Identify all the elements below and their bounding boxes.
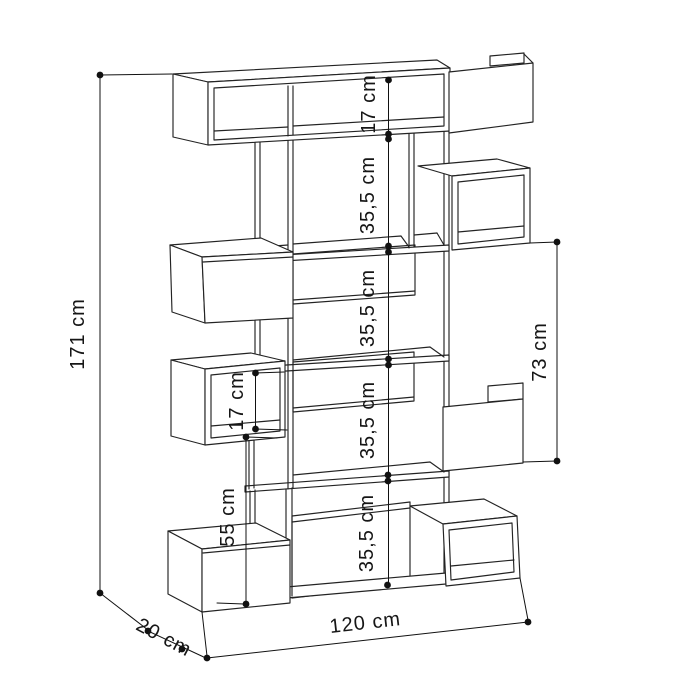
bottom-right-box xyxy=(410,499,520,586)
top-right-box xyxy=(449,53,533,133)
dim-label-depth: 20 cm xyxy=(132,614,195,661)
dim-label-right-span: 73 cm xyxy=(529,322,551,381)
top-box xyxy=(173,60,450,145)
dim-label-shelf-gap-2: 35,5 cm xyxy=(357,269,379,347)
back-panels xyxy=(292,245,415,598)
dim-label-lower-span: 55 cm xyxy=(217,487,239,546)
dim-label-top-gap: 17 cm xyxy=(358,74,380,133)
dim-label-shelf-gap-1: 35,5 cm xyxy=(357,156,379,234)
dim-label-shelf-gap-4: 35,5 cm xyxy=(356,494,378,572)
right-lower-box xyxy=(443,383,523,471)
dim-label-shelf-gap-3: 35,5 cm xyxy=(357,381,379,459)
bookcase-drawing: 171 cm 17 cm 35,5 cm 35,5 cm 35,5 cm 35,… xyxy=(0,0,700,700)
dimension-diagram: 171 cm 17 cm 35,5 cm 35,5 cm 35,5 cm 35,… xyxy=(0,0,700,700)
dim-label-width: 120 cm xyxy=(329,608,403,638)
dim-label-height: 171 cm xyxy=(67,298,89,370)
left-cabinet xyxy=(170,238,293,323)
dim-label-middle-box-gap: 17 cm xyxy=(226,371,248,430)
right-upper-box xyxy=(418,159,530,250)
